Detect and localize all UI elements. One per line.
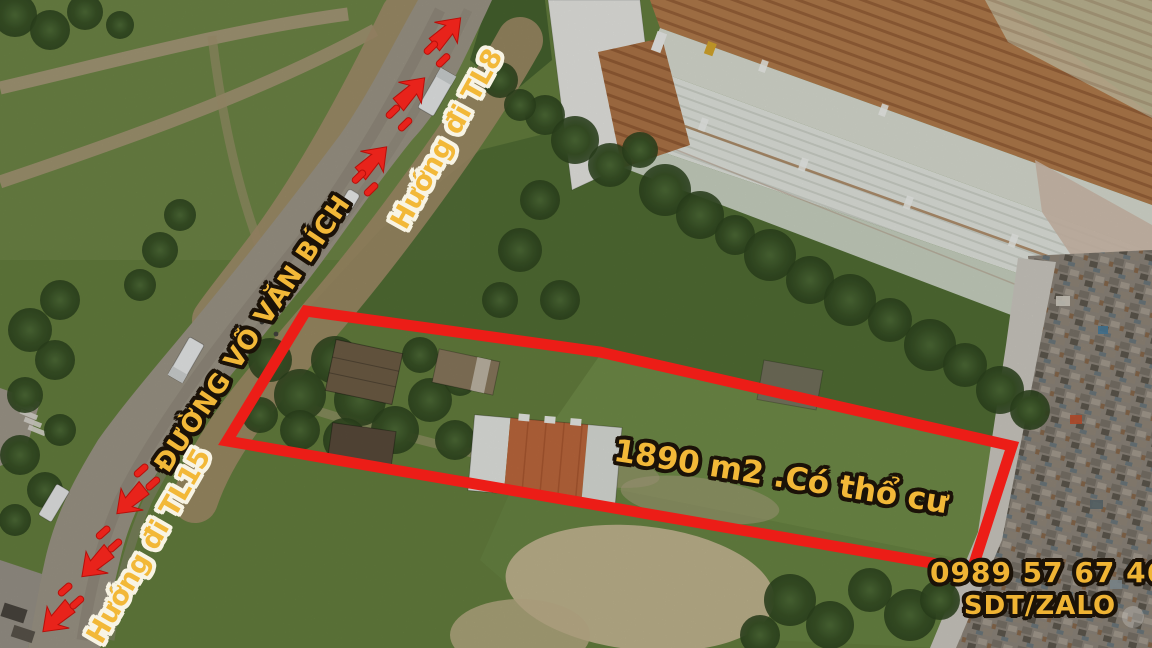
contact-channel-label: SDT/ZALO: [930, 591, 1150, 621]
contact-block: 0989 57 67 46 SDT/ZALO: [930, 556, 1150, 621]
aerial-photo: ĐƯỜNG VÕ VĂN BÍCH Hướng đi TL8 Hướng đi …: [0, 0, 1152, 648]
phone-number-label: 0989 57 67 46: [930, 556, 1150, 589]
aerial-photo-background: [0, 0, 1152, 648]
